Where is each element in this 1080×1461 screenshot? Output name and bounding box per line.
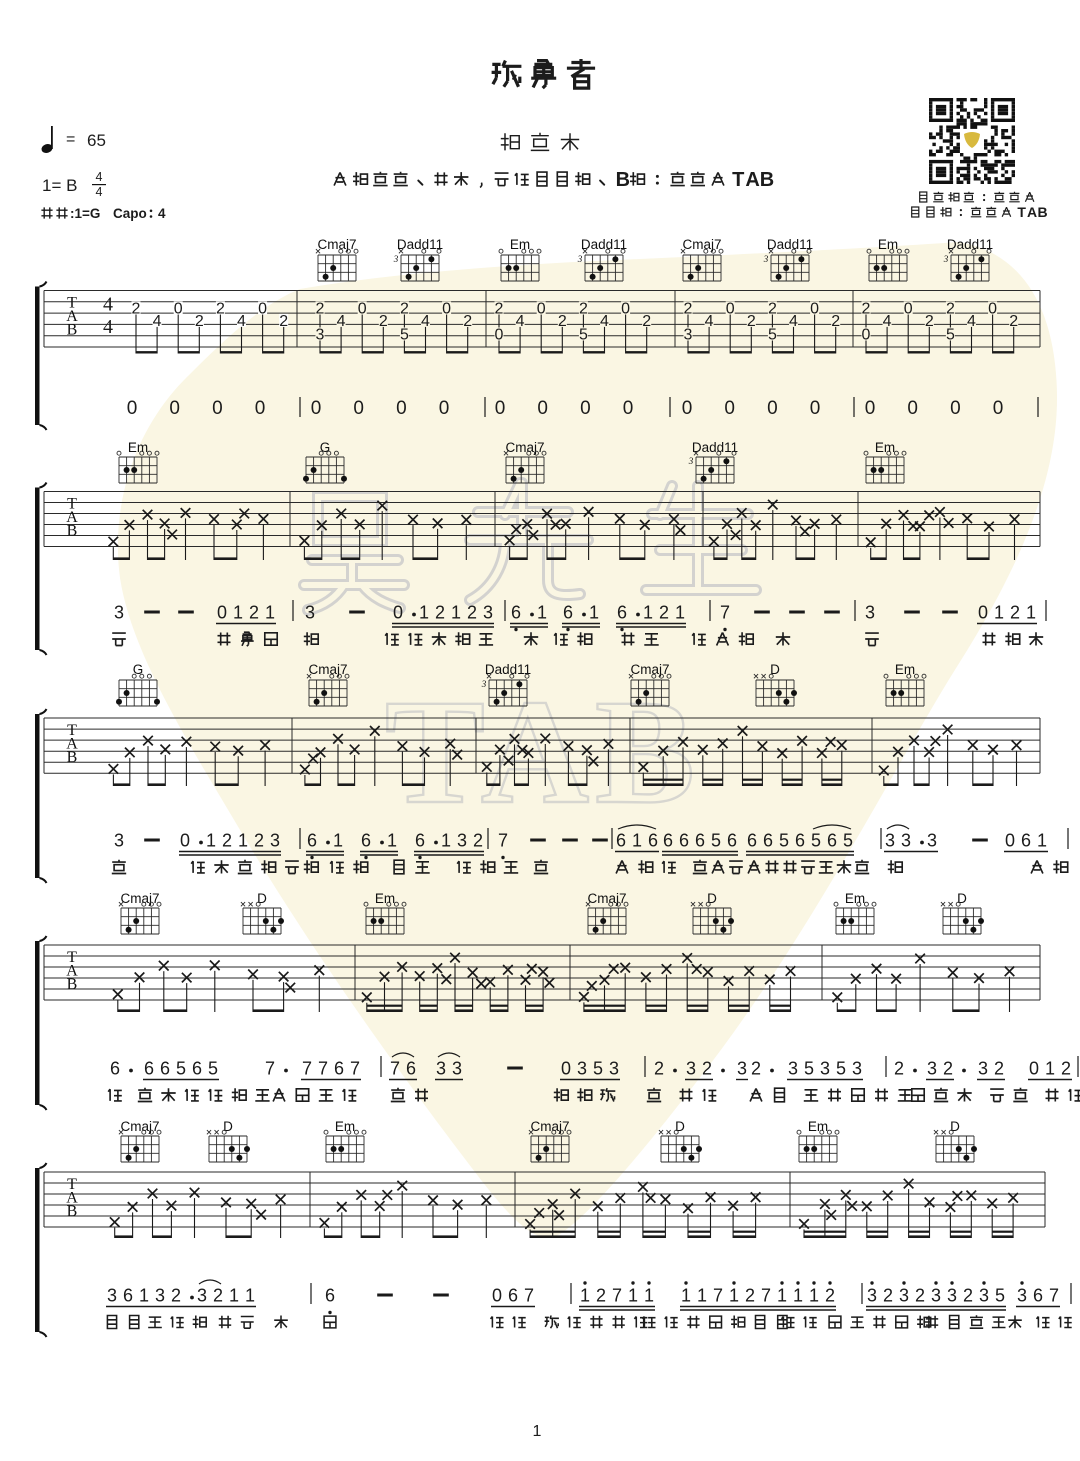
- svg-text:0: 0: [255, 398, 266, 419]
- svg-text:2: 2: [946, 301, 955, 318]
- svg-text:0: 0: [258, 301, 267, 318]
- svg-text:Dadd11: Dadd11: [485, 662, 531, 677]
- svg-text:1: 1: [387, 831, 397, 851]
- svg-text:1: 1: [229, 1286, 239, 1306]
- svg-text:3: 3: [788, 1059, 798, 1079]
- svg-text:3: 3: [737, 1059, 747, 1079]
- svg-text:4: 4: [103, 294, 113, 316]
- svg-text:2: 2: [279, 313, 288, 330]
- svg-text:1: 1: [994, 603, 1004, 623]
- svg-text:6: 6: [827, 831, 837, 851]
- svg-text:3: 3: [316, 327, 325, 344]
- svg-text:2: 2: [379, 313, 388, 330]
- svg-text:4: 4: [96, 185, 103, 199]
- svg-text:5: 5: [811, 831, 821, 851]
- svg-text:G: G: [320, 440, 331, 455]
- svg-text::1=G: :1=G: [70, 206, 100, 221]
- svg-text:D: D: [770, 662, 780, 677]
- svg-text:3: 3: [197, 1286, 207, 1306]
- svg-text:2: 2: [171, 1286, 181, 1306]
- svg-text:4: 4: [789, 313, 798, 330]
- svg-text:3: 3: [901, 831, 911, 851]
- svg-text:2: 2: [132, 301, 141, 318]
- svg-text:D: D: [223, 1119, 233, 1134]
- svg-text:0: 0: [993, 398, 1004, 419]
- svg-text:3: 3: [943, 254, 949, 264]
- svg-text:2: 2: [768, 301, 777, 318]
- svg-text:5: 5: [400, 327, 409, 344]
- svg-text:D: D: [957, 891, 967, 906]
- svg-text:4: 4: [237, 313, 246, 330]
- svg-text:2: 2: [831, 313, 840, 330]
- svg-text:1: 1: [1037, 831, 1047, 851]
- svg-text:B: B: [760, 169, 774, 191]
- svg-text:Capo: Capo: [113, 206, 147, 221]
- svg-text:Em: Em: [895, 662, 915, 677]
- svg-text:Em: Em: [510, 237, 530, 252]
- svg-text:2: 2: [894, 1059, 904, 1079]
- svg-text:Dadd11: Dadd11: [397, 237, 443, 252]
- svg-text:6: 6: [361, 831, 371, 851]
- svg-text:D: D: [950, 1119, 960, 1134]
- svg-text:0: 0: [767, 398, 778, 419]
- svg-text:2: 2: [745, 1286, 755, 1306]
- svg-text:2: 2: [316, 301, 325, 318]
- svg-text:1: 1: [206, 831, 216, 851]
- svg-text:4: 4: [967, 313, 976, 330]
- svg-text:Dadd11: Dadd11: [947, 237, 993, 252]
- svg-text:1: 1: [419, 603, 429, 623]
- svg-text:0: 0: [810, 301, 819, 318]
- svg-text:1: 1: [644, 1286, 654, 1306]
- svg-text:2: 2: [222, 831, 232, 851]
- svg-text:1: 1: [245, 1286, 255, 1306]
- svg-text:1: 1: [697, 1286, 707, 1306]
- svg-text:0: 0: [865, 398, 876, 419]
- svg-text:3: 3: [393, 254, 399, 264]
- svg-text:7: 7: [612, 1286, 622, 1306]
- svg-text:1: 1: [537, 603, 547, 623]
- svg-text:6: 6: [406, 1059, 416, 1079]
- svg-text:1: 1: [139, 1286, 149, 1306]
- svg-text:1: 1: [533, 1423, 542, 1440]
- svg-text:2: 2: [467, 603, 477, 623]
- svg-text:2: 2: [400, 301, 409, 318]
- svg-text:4: 4: [600, 313, 609, 330]
- svg-text:5: 5: [711, 831, 721, 851]
- svg-text:0: 0: [353, 398, 364, 419]
- svg-text:7: 7: [302, 1059, 312, 1079]
- svg-text:0: 0: [907, 398, 918, 419]
- svg-text:3: 3: [481, 679, 487, 689]
- svg-text:Em: Em: [335, 1119, 355, 1134]
- svg-text:7: 7: [498, 831, 508, 851]
- svg-text:5: 5: [995, 1286, 1005, 1306]
- svg-text:A: A: [1027, 204, 1037, 220]
- svg-text:0: 0: [311, 398, 322, 419]
- svg-text:2: 2: [216, 301, 225, 318]
- svg-text:0: 0: [492, 1286, 502, 1306]
- svg-text:2: 2: [943, 1059, 953, 1079]
- svg-text:1: 1: [451, 603, 461, 623]
- svg-text:3: 3: [979, 1286, 989, 1306]
- svg-text:B: B: [67, 749, 78, 766]
- svg-text:1: 1: [333, 831, 343, 851]
- svg-text:3: 3: [885, 831, 895, 851]
- svg-text:3: 3: [436, 1059, 446, 1079]
- svg-text:3: 3: [155, 1286, 165, 1306]
- svg-text:1: 1: [777, 1286, 787, 1306]
- svg-text:0: 0: [978, 603, 988, 623]
- svg-text:3: 3: [452, 1059, 462, 1079]
- svg-text:6: 6: [695, 831, 705, 851]
- svg-text:0: 0: [180, 831, 190, 851]
- svg-text:2: 2: [1009, 313, 1018, 330]
- svg-text:6: 6: [747, 831, 757, 851]
- svg-text:5: 5: [804, 1059, 814, 1079]
- svg-text:2: 2: [751, 1059, 761, 1079]
- svg-text:7: 7: [524, 1286, 534, 1306]
- svg-text:T: T: [1017, 204, 1026, 220]
- svg-text:5: 5: [779, 831, 789, 851]
- svg-text:2: 2: [883, 1286, 893, 1306]
- svg-text:2: 2: [702, 1059, 712, 1079]
- svg-text:3: 3: [114, 831, 124, 851]
- svg-text:3: 3: [852, 1059, 862, 1079]
- svg-text:7: 7: [720, 603, 730, 623]
- svg-text:6: 6: [1021, 831, 1031, 851]
- svg-text:2: 2: [654, 1059, 664, 1079]
- svg-text:2: 2: [473, 831, 483, 851]
- svg-text:B: B: [67, 976, 78, 993]
- svg-text:Dadd11: Dadd11: [692, 440, 738, 455]
- svg-text:0: 0: [442, 301, 451, 318]
- svg-text:3: 3: [483, 603, 493, 623]
- svg-text:2: 2: [1010, 603, 1020, 623]
- svg-text:3: 3: [577, 1059, 587, 1079]
- svg-text:3: 3: [927, 831, 937, 851]
- svg-text:3: 3: [947, 1286, 957, 1306]
- svg-text:T: T: [732, 169, 744, 191]
- svg-text:7: 7: [390, 1059, 400, 1079]
- svg-text:6: 6: [307, 831, 317, 851]
- svg-text:4: 4: [705, 313, 714, 330]
- svg-text:65: 65: [87, 131, 106, 150]
- svg-text:0: 0: [623, 398, 634, 419]
- svg-text:0: 0: [580, 398, 591, 419]
- svg-text:3: 3: [609, 1059, 619, 1079]
- svg-text:2: 2: [1061, 1059, 1071, 1079]
- svg-text:D: D: [257, 891, 267, 906]
- svg-text:Em: Em: [875, 440, 895, 455]
- svg-text:B: B: [67, 523, 78, 540]
- svg-text:0: 0: [950, 398, 961, 419]
- svg-text:4: 4: [96, 170, 103, 184]
- svg-text:3: 3: [865, 603, 875, 623]
- svg-text:6: 6: [334, 1059, 344, 1079]
- svg-text:6: 6: [763, 831, 773, 851]
- svg-text:4: 4: [516, 313, 525, 330]
- svg-text:0: 0: [358, 301, 367, 318]
- svg-text:0: 0: [1029, 1059, 1039, 1079]
- svg-text:4: 4: [421, 313, 430, 330]
- svg-text:5: 5: [946, 327, 955, 344]
- svg-text:1: 1: [580, 1286, 590, 1306]
- svg-text:6: 6: [663, 831, 673, 851]
- svg-text:4: 4: [153, 313, 162, 330]
- svg-text:2: 2: [659, 603, 669, 623]
- svg-text:1= B: 1= B: [42, 176, 77, 195]
- svg-text:3: 3: [867, 1286, 877, 1306]
- svg-text:1: 1: [729, 1286, 739, 1306]
- svg-text:0: 0: [495, 398, 506, 419]
- svg-text:2: 2: [825, 1286, 835, 1306]
- svg-text:6: 6: [679, 831, 689, 851]
- svg-text:3: 3: [927, 1059, 937, 1079]
- svg-text:3: 3: [577, 254, 583, 264]
- svg-text:3: 3: [270, 831, 280, 851]
- svg-text:6: 6: [616, 831, 626, 851]
- svg-text:1: 1: [809, 1286, 819, 1306]
- svg-text:6: 6: [415, 831, 425, 851]
- svg-text:6: 6: [1033, 1286, 1043, 1306]
- svg-text:2: 2: [684, 301, 693, 318]
- svg-text:6: 6: [123, 1286, 133, 1306]
- svg-text:5: 5: [579, 327, 588, 344]
- svg-text:7: 7: [265, 1059, 275, 1079]
- svg-text:7: 7: [713, 1286, 723, 1306]
- svg-text:1: 1: [1045, 1059, 1055, 1079]
- svg-text:G: G: [133, 662, 144, 677]
- svg-text:4: 4: [337, 313, 346, 330]
- svg-text:3: 3: [305, 603, 315, 623]
- svg-text:0: 0: [396, 398, 407, 419]
- svg-text:0: 0: [495, 327, 504, 344]
- svg-text:6: 6: [617, 603, 627, 623]
- svg-text:2: 2: [642, 313, 651, 330]
- svg-text:5: 5: [836, 1059, 846, 1079]
- svg-text:2: 2: [254, 831, 264, 851]
- svg-text:Em: Em: [878, 237, 898, 252]
- svg-text:0: 0: [439, 398, 450, 419]
- svg-text:Cmaj7: Cmaj7: [317, 237, 356, 252]
- svg-text:3: 3: [107, 1286, 117, 1306]
- svg-text:0: 0: [212, 398, 223, 419]
- svg-text:7: 7: [761, 1286, 771, 1306]
- svg-text:Cmaj7: Cmaj7: [630, 662, 669, 677]
- svg-text:B: B: [67, 1203, 78, 1220]
- svg-text:1: 1: [238, 831, 248, 851]
- svg-text:T: T: [385, 669, 485, 835]
- svg-text:Em: Em: [808, 1119, 828, 1134]
- svg-text:1: 1: [441, 831, 451, 851]
- svg-text:2: 2: [558, 313, 567, 330]
- svg-text:2: 2: [213, 1286, 223, 1306]
- svg-text:2: 2: [249, 603, 259, 623]
- svg-text:1: 1: [681, 1286, 691, 1306]
- svg-text:6: 6: [325, 1286, 335, 1306]
- svg-text:0: 0: [537, 301, 546, 318]
- svg-text:5: 5: [843, 831, 853, 851]
- svg-text:D: D: [675, 1119, 685, 1134]
- svg-text:0: 0: [862, 327, 871, 344]
- svg-text:Em: Em: [375, 891, 395, 906]
- svg-text:0: 0: [174, 301, 183, 318]
- svg-text:2: 2: [994, 1059, 1004, 1079]
- svg-text:3: 3: [978, 1059, 988, 1079]
- svg-text:3: 3: [114, 603, 124, 623]
- svg-text:0: 0: [537, 398, 548, 419]
- svg-text:0: 0: [904, 301, 913, 318]
- svg-text:6: 6: [192, 1059, 202, 1079]
- svg-text:D: D: [707, 891, 717, 906]
- svg-text:1: 1: [265, 603, 275, 623]
- svg-text:5: 5: [208, 1059, 218, 1079]
- svg-text:6: 6: [144, 1059, 154, 1079]
- svg-text:0: 0: [217, 603, 227, 623]
- svg-text:0: 0: [988, 301, 997, 318]
- svg-text:0: 0: [127, 398, 138, 419]
- svg-text:Cmaj7: Cmaj7: [308, 662, 347, 677]
- svg-text:3: 3: [686, 1059, 696, 1079]
- svg-text:3: 3: [763, 254, 769, 264]
- svg-text:6: 6: [160, 1059, 170, 1079]
- svg-text:Dadd11: Dadd11: [767, 237, 813, 252]
- svg-text:7: 7: [1049, 1286, 1059, 1306]
- svg-text:7: 7: [350, 1059, 360, 1079]
- svg-text:0: 0: [393, 603, 403, 623]
- svg-text:6: 6: [648, 831, 658, 851]
- svg-text:3: 3: [1017, 1286, 1027, 1306]
- svg-text:1: 1: [632, 831, 642, 851]
- svg-text:6: 6: [110, 1059, 120, 1079]
- svg-text:6: 6: [563, 603, 573, 623]
- svg-text:2: 2: [862, 301, 871, 318]
- svg-text:6: 6: [727, 831, 737, 851]
- svg-text:A: A: [745, 169, 759, 191]
- svg-text:1: 1: [628, 1286, 638, 1306]
- svg-text:2: 2: [963, 1286, 973, 1306]
- svg-text:2: 2: [579, 301, 588, 318]
- svg-text:0: 0: [561, 1059, 571, 1079]
- svg-text:6: 6: [511, 603, 521, 623]
- svg-text:3: 3: [457, 831, 467, 851]
- svg-text:B: B: [1037, 204, 1047, 220]
- svg-text:1: 1: [589, 603, 599, 623]
- svg-text:1: 1: [793, 1286, 803, 1306]
- svg-text:B: B: [616, 169, 630, 191]
- svg-text:1: 1: [233, 603, 243, 623]
- svg-text:1: 1: [675, 603, 685, 623]
- svg-text:2: 2: [747, 313, 756, 330]
- svg-text:4: 4: [883, 313, 892, 330]
- svg-text:0: 0: [169, 398, 180, 419]
- svg-text:2: 2: [925, 313, 934, 330]
- svg-text:0: 0: [724, 398, 735, 419]
- svg-text:5: 5: [593, 1059, 603, 1079]
- svg-text:0: 0: [1005, 831, 1015, 851]
- svg-text:0: 0: [682, 398, 693, 419]
- svg-text:3: 3: [684, 327, 693, 344]
- svg-text:2: 2: [915, 1286, 925, 1306]
- svg-text:7: 7: [318, 1059, 328, 1079]
- svg-text:2: 2: [435, 603, 445, 623]
- svg-text:6: 6: [795, 831, 805, 851]
- svg-text:Cmaj7: Cmaj7: [682, 237, 721, 252]
- svg-text:Dadd11: Dadd11: [581, 237, 627, 252]
- svg-text:3: 3: [899, 1286, 909, 1306]
- svg-text:3: 3: [688, 456, 694, 466]
- svg-text:4: 4: [158, 206, 166, 221]
- svg-text:Em: Em: [128, 440, 148, 455]
- svg-text:3: 3: [820, 1059, 830, 1079]
- svg-text:0: 0: [726, 301, 735, 318]
- svg-text:5: 5: [176, 1059, 186, 1079]
- svg-text:Em: Em: [845, 891, 865, 906]
- svg-text:2: 2: [195, 313, 204, 330]
- svg-text:3: 3: [931, 1286, 941, 1306]
- svg-text:1: 1: [643, 603, 653, 623]
- svg-text:0: 0: [810, 398, 821, 419]
- svg-text:6: 6: [508, 1286, 518, 1306]
- svg-text:4: 4: [103, 316, 113, 338]
- svg-text:5: 5: [768, 327, 777, 344]
- svg-text:B: B: [67, 322, 78, 339]
- svg-text:0: 0: [621, 301, 630, 318]
- svg-text:=: =: [66, 131, 75, 148]
- svg-text:1: 1: [1026, 603, 1036, 623]
- svg-text:2: 2: [495, 301, 504, 318]
- svg-text:2: 2: [463, 313, 472, 330]
- svg-text:2: 2: [596, 1286, 606, 1306]
